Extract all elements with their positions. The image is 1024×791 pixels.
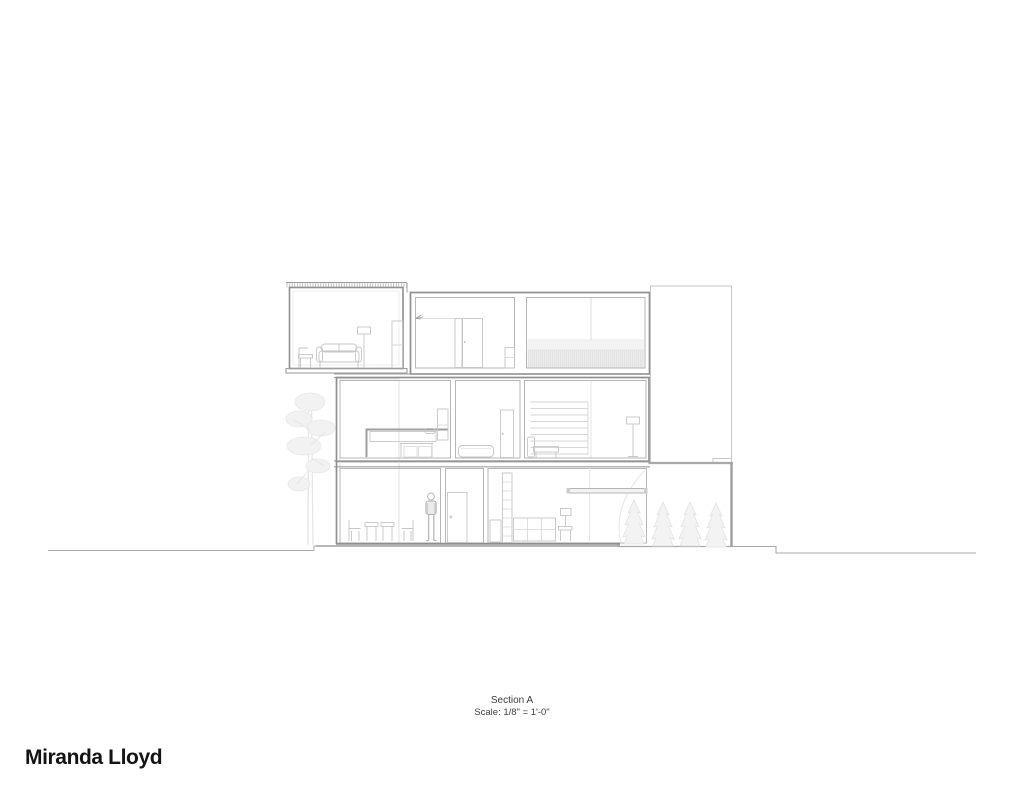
drawing-title-block: Section A Scale: 1/8" = 1'-0" xyxy=(0,694,1024,719)
hallway-door xyxy=(448,493,468,543)
upper-rooms xyxy=(411,293,650,375)
upper-lounge xyxy=(286,283,407,374)
pendant-bar-light xyxy=(567,488,648,494)
upper-loft-room xyxy=(528,298,645,368)
ground-floor xyxy=(336,461,727,547)
bedroom xyxy=(367,409,449,457)
wardrobe xyxy=(438,409,449,440)
floor-lamp xyxy=(627,417,640,457)
drawing-scale: Scale: 1/8" = 1'-0" xyxy=(0,707,1024,719)
sofa xyxy=(514,518,556,541)
pine-tree xyxy=(286,393,335,545)
person-figure xyxy=(426,493,437,540)
author-name: Miranda Lloyd xyxy=(25,746,162,770)
stair-room xyxy=(528,381,640,458)
page: Section A Scale: 1/8" = 1'-0" Miranda Ll… xyxy=(0,0,1024,791)
bathtub xyxy=(459,446,494,458)
desk xyxy=(400,444,433,458)
railing-band xyxy=(528,350,645,368)
living-room xyxy=(490,468,648,544)
dresser xyxy=(490,520,501,542)
bathroom xyxy=(459,410,514,458)
conifer-trees xyxy=(623,500,727,547)
sofa xyxy=(317,344,362,368)
section-drawing xyxy=(0,0,1024,791)
upper-closet-room xyxy=(416,315,515,368)
dining-furniture xyxy=(349,520,413,541)
shelf xyxy=(503,473,513,543)
cabinet xyxy=(392,321,403,368)
middle-floor xyxy=(334,374,650,544)
drawing-title: Section A xyxy=(0,694,1024,707)
side-table-lamp xyxy=(559,509,573,542)
